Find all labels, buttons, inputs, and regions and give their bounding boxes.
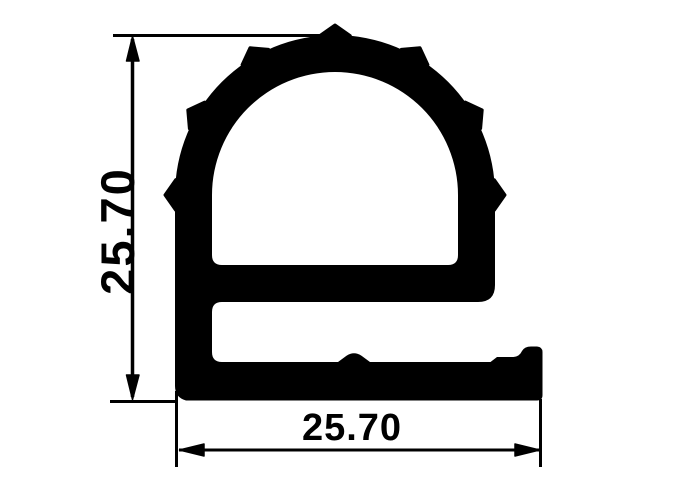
seal-profile bbox=[165, 25, 543, 401]
profile-outline bbox=[175, 35, 543, 401]
height-arrowhead-down bbox=[127, 375, 140, 400]
technical-drawing-canvas: 25.70 25.70 bbox=[0, 0, 700, 491]
height-dimension-label: 25.70 bbox=[91, 167, 144, 295]
seal-profile-drawing: 25.70 25.70 bbox=[0, 0, 700, 491]
width-dimension-label: 25.70 bbox=[302, 407, 402, 449]
height-arrowhead-up bbox=[127, 37, 140, 62]
width-arrowhead-left bbox=[180, 444, 205, 456]
width-arrowhead-right bbox=[515, 444, 540, 456]
width-dimension: 25.70 bbox=[177, 391, 541, 467]
